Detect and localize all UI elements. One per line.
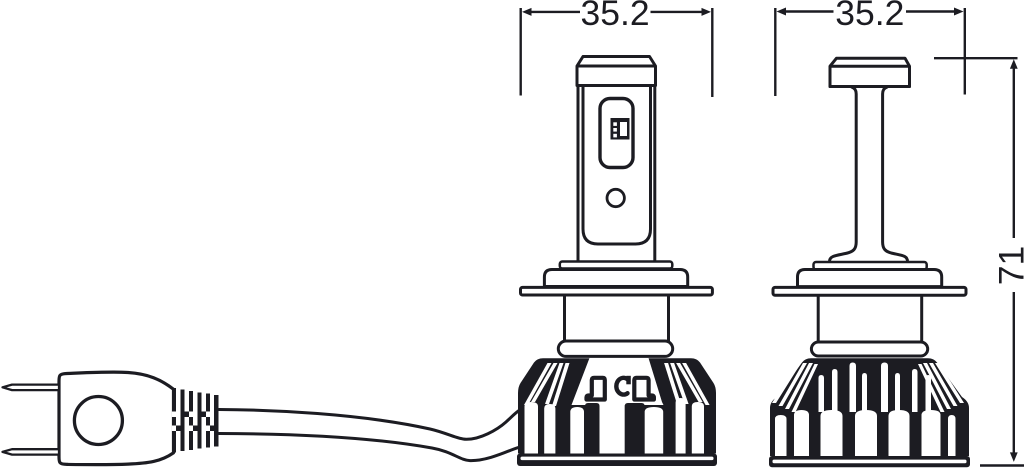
svg-text:35.2: 35.2 — [581, 0, 650, 33]
svg-text:71: 71 — [992, 246, 1024, 286]
svg-text:35.2: 35.2 — [835, 0, 904, 33]
